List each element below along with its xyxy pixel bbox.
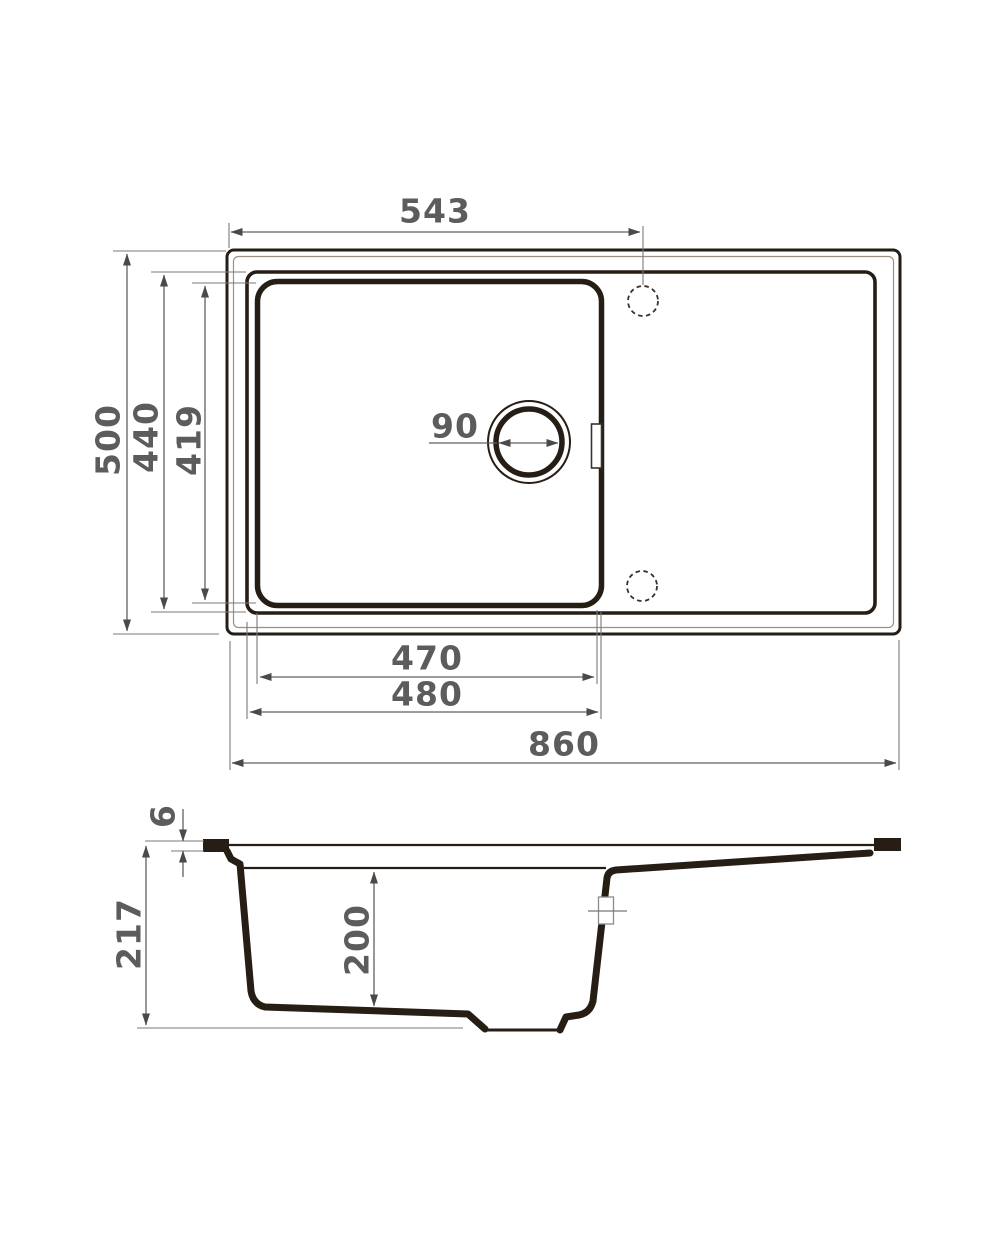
drain-outer-circle bbox=[488, 401, 570, 483]
dim-label-bowl-depth: 200 bbox=[341, 904, 374, 976]
dim-543 bbox=[229, 223, 643, 285]
overflow-hole-section bbox=[588, 897, 627, 924]
dim-label-bowl-inner-depth: 419 bbox=[173, 404, 206, 476]
dim-217 bbox=[137, 846, 463, 1028]
dim-label-bowl-outer-depth: 440 bbox=[130, 401, 163, 473]
sink-dimension-diagram: 543 500 440 419 90 470 480 860 6 217 200 bbox=[0, 0, 1000, 1235]
dim-label-overall-height: 217 bbox=[113, 898, 146, 970]
faucet-hole-bottom bbox=[627, 571, 657, 601]
dim-label-faucet-hole-offset: 543 bbox=[399, 195, 471, 228]
top-view bbox=[113, 223, 900, 770]
dim-label-drain-diameter: 90 bbox=[431, 410, 479, 443]
drain-inner-circle bbox=[496, 409, 562, 475]
faucet-hole-top bbox=[628, 286, 658, 316]
overflow-slot bbox=[592, 424, 602, 468]
dim-label-rim-thickness: 6 bbox=[147, 804, 180, 828]
rim-right-cap bbox=[874, 838, 901, 851]
drawing-linework bbox=[0, 0, 1000, 1235]
side-view bbox=[137, 809, 901, 1030]
dim-label-overall-depth: 500 bbox=[92, 404, 125, 476]
bowl-profile-right bbox=[560, 853, 870, 1030]
dim-label-bowl-outer-width: 480 bbox=[391, 678, 463, 711]
dim-label-bowl-inner-width: 470 bbox=[391, 642, 463, 675]
dim-label-overall-width: 860 bbox=[528, 728, 600, 761]
